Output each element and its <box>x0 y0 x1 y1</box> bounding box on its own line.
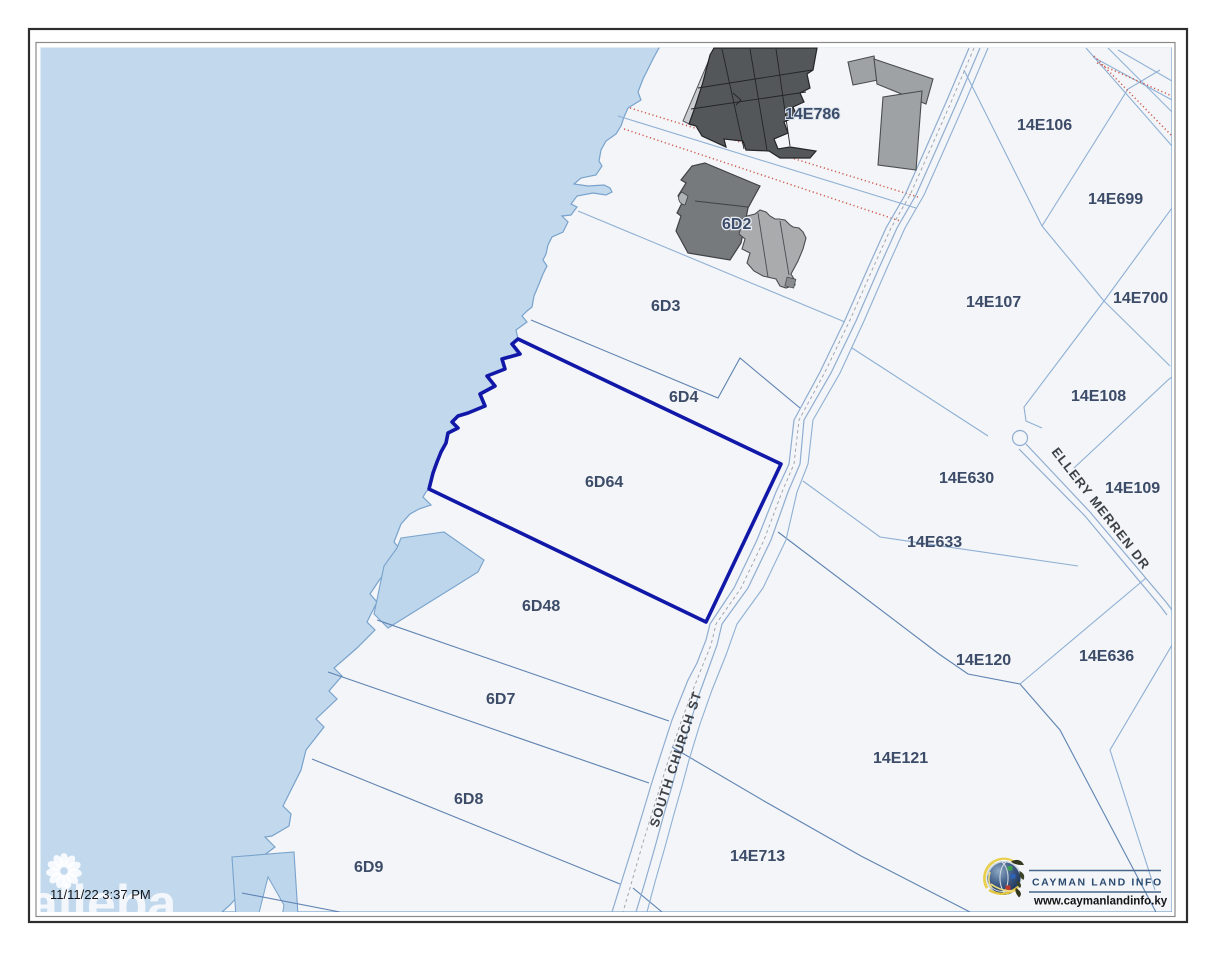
svg-text:6D9: 6D9 <box>354 859 383 876</box>
svg-text:14E786: 14E786 <box>785 106 840 123</box>
svg-text:6D7: 6D7 <box>486 691 515 708</box>
svg-text:14E700: 14E700 <box>1113 290 1168 307</box>
svg-text:CAYMAN LAND INFO: CAYMAN LAND INFO <box>1032 877 1163 889</box>
svg-text:14E713: 14E713 <box>730 848 785 865</box>
svg-text:14E106: 14E106 <box>1017 117 1072 134</box>
svg-text:11/11/22 3:37 PM: 11/11/22 3:37 PM <box>50 887 151 902</box>
svg-text:6D3: 6D3 <box>651 298 680 315</box>
svg-text:6D64: 6D64 <box>585 474 623 491</box>
svg-text:6D8: 6D8 <box>454 791 483 808</box>
svg-text:14E108: 14E108 <box>1071 388 1126 405</box>
svg-text:14E107: 14E107 <box>966 294 1021 311</box>
svg-text:14E120: 14E120 <box>956 652 1011 669</box>
svg-text:14E636: 14E636 <box>1079 648 1134 665</box>
svg-text:14E121: 14E121 <box>873 750 928 767</box>
svg-text:6D2: 6D2 <box>722 216 751 233</box>
svg-text:14E109: 14E109 <box>1105 480 1160 497</box>
svg-text:14E633: 14E633 <box>907 534 962 551</box>
svg-text:14E630: 14E630 <box>939 470 994 487</box>
svg-text:www.caymanlandinfo.ky: www.caymanlandinfo.ky <box>1033 896 1168 908</box>
svg-text:14E699: 14E699 <box>1088 191 1143 208</box>
svg-text:6D48: 6D48 <box>522 598 560 615</box>
svg-text:6D4: 6D4 <box>669 389 698 406</box>
